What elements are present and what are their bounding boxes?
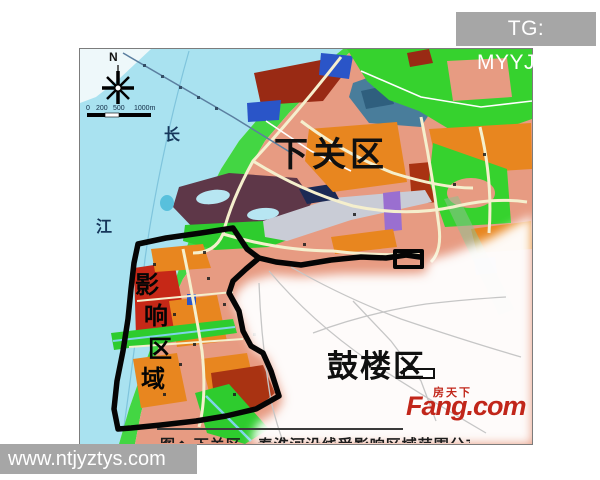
telegram-watermark: TG: MYYJJPP <box>456 12 596 46</box>
website-watermark: www.ntjyztys.com <box>0 444 197 474</box>
scale-label-200: 200 <box>96 105 108 112</box>
map-caption-clipped: 图◆ 下关区、秦淮河沿线受影响区域范围分布图 <box>160 434 470 443</box>
legend-box <box>404 369 434 378</box>
scale-bar: 0 200 500 1000m <box>86 105 156 117</box>
caption-divider-line <box>157 428 403 430</box>
scale-label-0: 0 <box>86 105 90 112</box>
scale-label-1000m: 1000m <box>134 105 156 112</box>
map-caption-text: 图◆ 下关区、秦淮河沿线受影响区域范围分布图 <box>160 434 470 443</box>
fang-logo-wordmark: Fang.com <box>406 391 526 422</box>
scale-label-500: 500 <box>113 105 125 112</box>
screenshot-page: 0 200 500 1000m N 长 江 下关区 鼓楼区 影 响 区 域 房天 <box>0 0 600 480</box>
